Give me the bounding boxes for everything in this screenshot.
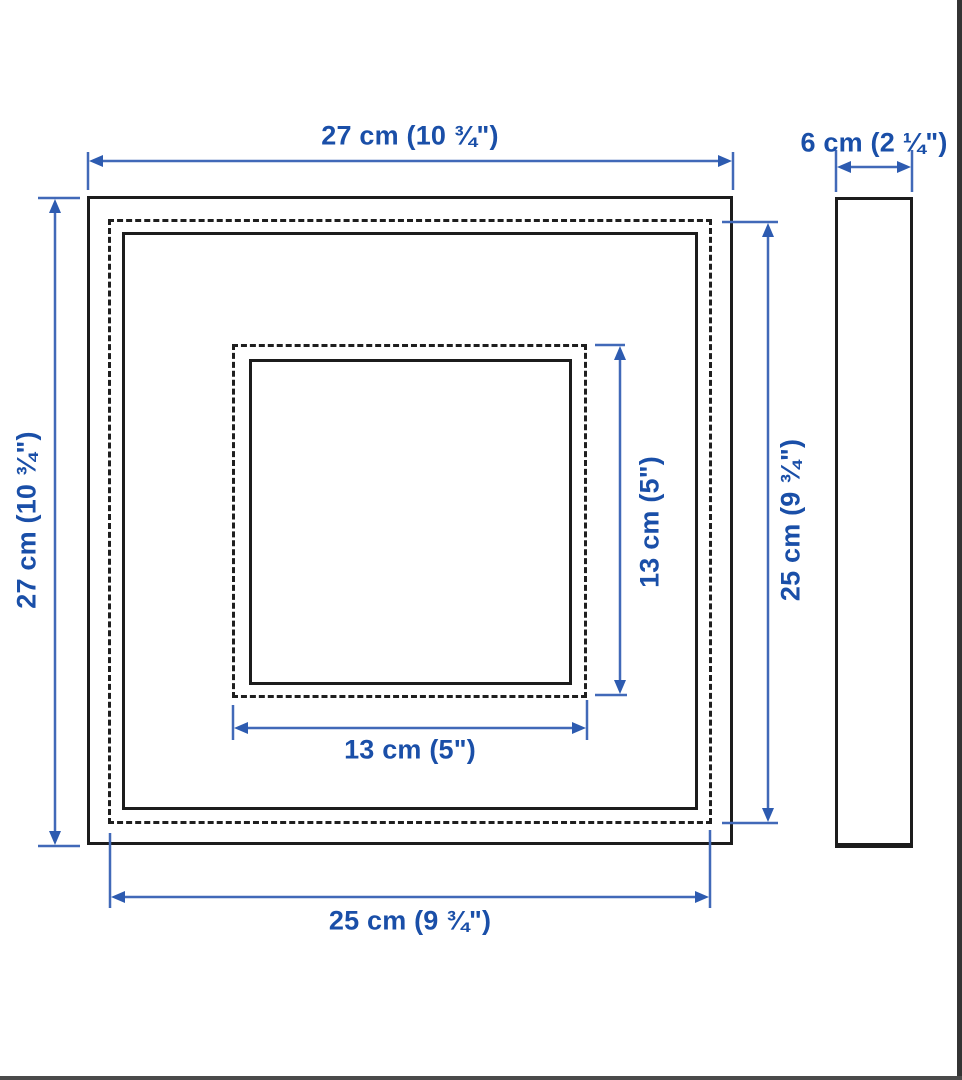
arrow-down-icon — [49, 831, 61, 845]
mat-picture-opening — [249, 359, 572, 685]
arrow-left-icon — [111, 891, 125, 903]
screen-edge-artifact-bottom — [0, 1076, 962, 1080]
label-front-glass-height: 25 cm (9 ¾") — [776, 439, 807, 601]
label-front-outer-height: 27 cm (10 ¾") — [12, 431, 43, 609]
arrow-up-icon — [762, 223, 774, 237]
arrow-right-icon — [695, 891, 709, 903]
arrow-right-icon — [718, 155, 732, 167]
arrow-right-icon — [897, 161, 911, 173]
label-side-depth: 6 cm (2 ¼") — [800, 128, 947, 159]
arrow-down-icon — [762, 808, 774, 822]
label-front-glass-width: 25 cm (9 ¾") — [329, 906, 491, 937]
label-picture-opening-width: 13 cm (5") — [344, 735, 476, 766]
arrow-up-icon — [49, 199, 61, 213]
dimension-diagram: 27 cm (10 ¾") 6 cm (2 ¼") 27 cm (10 ¾") … — [0, 0, 962, 1080]
label-front-outer-width: 27 cm (10 ¾") — [321, 121, 499, 152]
frame-side-profile — [835, 197, 913, 848]
arrow-left-icon — [89, 155, 103, 167]
label-picture-opening-height: 13 cm (5") — [635, 456, 666, 588]
dim-left-height — [38, 198, 80, 846]
arrow-left-icon — [837, 161, 851, 173]
screen-edge-artifact-right — [957, 0, 962, 1080]
dim-top-width — [88, 152, 733, 190]
